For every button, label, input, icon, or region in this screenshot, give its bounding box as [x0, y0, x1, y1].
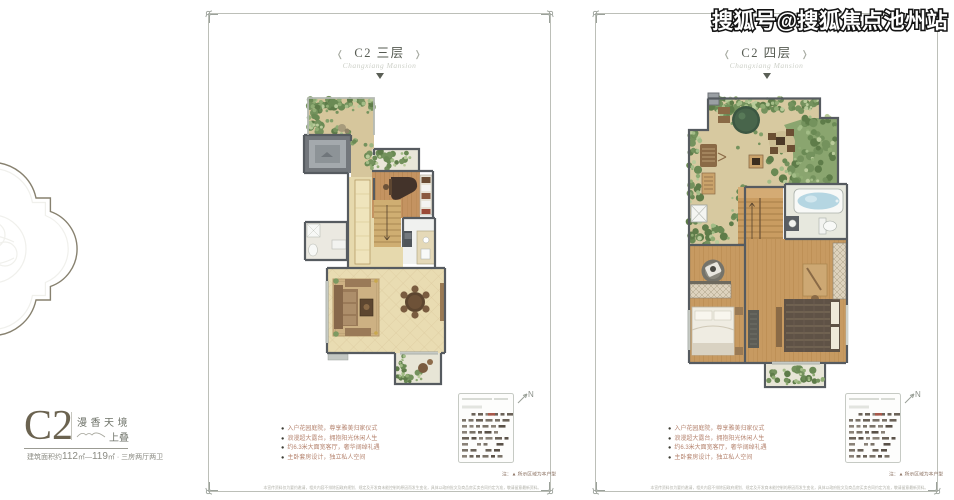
- svg-text:N: N: [528, 390, 534, 399]
- svg-text:N: N: [915, 390, 921, 399]
- svg-text:搜狐号@搜狐焦点池州站: 搜狐号@搜狐焦点池州站: [712, 9, 948, 33]
